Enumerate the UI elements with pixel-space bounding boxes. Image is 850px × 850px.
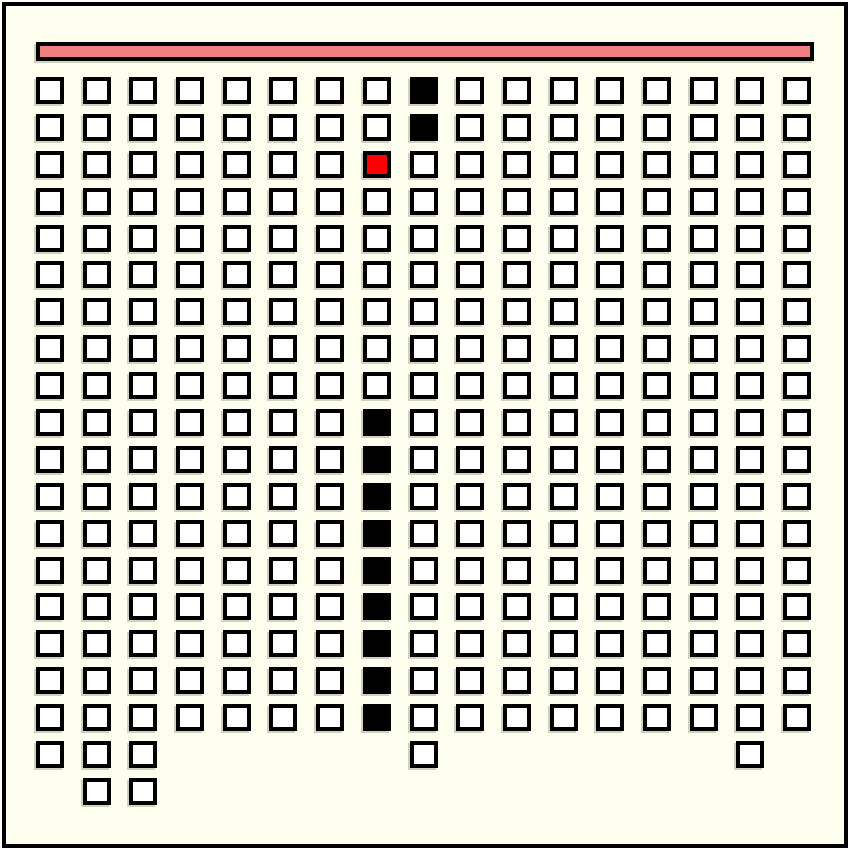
board-cell <box>83 741 111 768</box>
board-cell <box>550 520 578 547</box>
board-cell <box>36 667 64 694</box>
board-cell <box>456 298 484 325</box>
board-cell <box>736 446 764 473</box>
board-cell <box>223 188 251 215</box>
board-cell <box>690 151 718 178</box>
board-cell <box>129 446 157 473</box>
board-cell <box>783 372 811 399</box>
board-cell <box>129 77 157 104</box>
board-cell <box>83 483 111 510</box>
board-cell <box>503 188 531 215</box>
board-cell <box>410 372 438 399</box>
board-cell <box>596 593 624 620</box>
board-cell <box>550 667 578 694</box>
board-cell <box>503 372 531 399</box>
board-cell <box>410 557 438 584</box>
board-cell <box>36 557 64 584</box>
board-cell <box>129 409 157 436</box>
board-cell <box>36 483 64 510</box>
board-cell <box>223 261 251 288</box>
board-cell <box>456 372 484 399</box>
board-cell <box>643 372 671 399</box>
board-cell <box>269 151 297 178</box>
board-cell <box>410 446 438 473</box>
board-cell <box>83 667 111 694</box>
board-cell <box>363 114 391 141</box>
board-cell <box>736 261 764 288</box>
board-cell <box>410 520 438 547</box>
board-cell <box>503 557 531 584</box>
board-cell <box>596 630 624 657</box>
board-cell <box>176 704 204 731</box>
board-cell <box>550 372 578 399</box>
board-cell <box>736 593 764 620</box>
board-cell <box>503 151 531 178</box>
board-cell <box>269 446 297 473</box>
board-cell <box>363 409 391 436</box>
board-cell <box>550 151 578 178</box>
board-cell <box>783 77 811 104</box>
board-cell <box>550 225 578 252</box>
board-cell <box>690 261 718 288</box>
board-cell <box>596 409 624 436</box>
board-cell <box>83 335 111 362</box>
board-cell <box>690 483 718 510</box>
board-cell <box>550 77 578 104</box>
board-cell <box>363 261 391 288</box>
app-canvas <box>0 0 850 850</box>
board-cell <box>316 225 344 252</box>
board-cell <box>736 225 764 252</box>
board-cell <box>410 261 438 288</box>
board-cell <box>596 520 624 547</box>
board-cell <box>83 778 111 805</box>
board-cell <box>223 114 251 141</box>
board-cell <box>783 557 811 584</box>
board-cell <box>316 114 344 141</box>
board-cell <box>129 261 157 288</box>
board-cell <box>176 557 204 584</box>
board-cell <box>736 77 764 104</box>
board-cell <box>690 298 718 325</box>
board-cell <box>176 520 204 547</box>
board-cell <box>503 483 531 510</box>
board-cell <box>643 298 671 325</box>
board-cell <box>176 630 204 657</box>
board-cell <box>410 298 438 325</box>
board-cell <box>690 520 718 547</box>
board-cell <box>316 261 344 288</box>
board-cell <box>176 298 204 325</box>
board-cell <box>456 409 484 436</box>
board-cell <box>410 741 438 768</box>
board-cell <box>410 409 438 436</box>
board-cell <box>456 77 484 104</box>
board-cell <box>736 667 764 694</box>
board-cell <box>83 225 111 252</box>
board-cell <box>269 298 297 325</box>
board-cell <box>129 151 157 178</box>
board-cell <box>456 520 484 547</box>
board-cell <box>690 114 718 141</box>
board-cell <box>176 483 204 510</box>
board-cell <box>596 225 624 252</box>
board-cell <box>269 667 297 694</box>
board-cell <box>363 446 391 473</box>
board-cell <box>129 225 157 252</box>
board-cell <box>223 593 251 620</box>
board-cell <box>363 557 391 584</box>
board-cell <box>783 483 811 510</box>
board-cell <box>643 630 671 657</box>
board-cell <box>316 335 344 362</box>
board-cell <box>456 667 484 694</box>
board-cell <box>223 557 251 584</box>
board-cell <box>643 483 671 510</box>
board-cell <box>503 335 531 362</box>
progress-bar <box>36 42 814 61</box>
board-cell <box>316 151 344 178</box>
board-cell <box>269 114 297 141</box>
board-cell <box>503 261 531 288</box>
board-cell <box>550 446 578 473</box>
board-cell <box>503 667 531 694</box>
board-cell <box>736 520 764 547</box>
board-cell <box>316 520 344 547</box>
board-cell <box>596 77 624 104</box>
board-cell <box>316 446 344 473</box>
board-cell <box>410 188 438 215</box>
board-cell <box>176 188 204 215</box>
board-cell <box>176 151 204 178</box>
board-cell <box>363 483 391 510</box>
board-cell <box>363 630 391 657</box>
board-cell <box>596 151 624 178</box>
board-cell <box>269 593 297 620</box>
board-cell <box>410 225 438 252</box>
board-cell <box>83 630 111 657</box>
board-cell <box>223 298 251 325</box>
board-cell <box>36 77 64 104</box>
board-cell <box>363 520 391 547</box>
board-cell <box>643 704 671 731</box>
board-cell <box>783 593 811 620</box>
board-cell <box>736 483 764 510</box>
board-cell <box>83 298 111 325</box>
board-cell <box>503 225 531 252</box>
board-cell <box>129 483 157 510</box>
board-cell <box>316 372 344 399</box>
board-cell <box>503 520 531 547</box>
board-cell <box>456 188 484 215</box>
board-cell <box>783 151 811 178</box>
board-cell <box>596 261 624 288</box>
board-cell <box>643 151 671 178</box>
board-cell <box>269 77 297 104</box>
board-cell <box>83 704 111 731</box>
board-cell <box>456 151 484 178</box>
board-cell <box>690 630 718 657</box>
board-cell <box>83 372 111 399</box>
board-cell <box>129 778 157 805</box>
board-cell <box>223 667 251 694</box>
board-cell <box>269 483 297 510</box>
board-cell <box>269 630 297 657</box>
board-cell <box>269 409 297 436</box>
board-cell <box>316 188 344 215</box>
board-cell <box>129 520 157 547</box>
board-cell <box>36 704 64 731</box>
board-cell <box>176 409 204 436</box>
board-cell <box>176 225 204 252</box>
board-cell <box>83 114 111 141</box>
board-cell <box>83 151 111 178</box>
board-cell <box>596 188 624 215</box>
board-cell <box>176 261 204 288</box>
board-cell <box>36 298 64 325</box>
board-cell <box>550 261 578 288</box>
board-cell <box>596 446 624 473</box>
board-cell <box>269 372 297 399</box>
board-cell <box>36 593 64 620</box>
board-cell <box>36 446 64 473</box>
board-cell <box>456 261 484 288</box>
board-cell <box>736 298 764 325</box>
board-cell <box>550 593 578 620</box>
board-cell <box>83 593 111 620</box>
board-cell <box>783 335 811 362</box>
board-cell <box>36 335 64 362</box>
board-cell <box>363 372 391 399</box>
board-cell <box>410 593 438 620</box>
board-cell <box>363 593 391 620</box>
board-cell <box>643 557 671 584</box>
board-cell <box>596 483 624 510</box>
board-cell <box>783 188 811 215</box>
board-cell <box>316 298 344 325</box>
board-cell <box>456 557 484 584</box>
board-cell <box>316 667 344 694</box>
board-cell <box>363 151 391 178</box>
board-cell <box>550 557 578 584</box>
board-cell <box>129 704 157 731</box>
board-cell <box>316 77 344 104</box>
board-cell <box>596 557 624 584</box>
board-cell <box>690 557 718 584</box>
board-cell <box>36 520 64 547</box>
board-cell <box>643 188 671 215</box>
board-cell <box>269 225 297 252</box>
board-cell <box>36 188 64 215</box>
board-cell <box>83 520 111 547</box>
board-cell <box>503 630 531 657</box>
board-cell <box>316 557 344 584</box>
board-cell <box>783 446 811 473</box>
board-cell <box>456 335 484 362</box>
board-cell <box>783 409 811 436</box>
board-cell <box>83 409 111 436</box>
board-cell <box>410 151 438 178</box>
board-cell <box>363 335 391 362</box>
board-cell <box>690 335 718 362</box>
board-cell <box>223 446 251 473</box>
board-cell <box>643 667 671 694</box>
board-cell <box>129 557 157 584</box>
board-cell <box>129 593 157 620</box>
board-cell <box>456 483 484 510</box>
board-cell <box>783 114 811 141</box>
board-cell <box>36 372 64 399</box>
board-cell <box>690 77 718 104</box>
board-cell <box>643 261 671 288</box>
board-cell <box>643 225 671 252</box>
board-cell <box>36 409 64 436</box>
board-cell <box>550 630 578 657</box>
board-cell <box>783 520 811 547</box>
board-cell <box>736 372 764 399</box>
board-cell <box>129 335 157 362</box>
board-cell <box>363 667 391 694</box>
board-cell <box>550 114 578 141</box>
board-cell <box>129 298 157 325</box>
board-cell <box>690 409 718 436</box>
board-cell <box>736 557 764 584</box>
board-cell <box>363 298 391 325</box>
board-cell <box>129 372 157 399</box>
board-cell <box>410 114 438 141</box>
board-cell <box>316 630 344 657</box>
board-cell <box>269 557 297 584</box>
board-cell <box>316 483 344 510</box>
board-cell <box>176 114 204 141</box>
board-cell <box>503 298 531 325</box>
board-cell <box>783 704 811 731</box>
board-cell <box>129 630 157 657</box>
board-cell <box>363 188 391 215</box>
board-cell <box>83 557 111 584</box>
board-cell <box>363 225 391 252</box>
board-cell <box>596 704 624 731</box>
board-cell <box>129 114 157 141</box>
board-cell <box>269 335 297 362</box>
board-cell <box>363 704 391 731</box>
board-cell <box>83 261 111 288</box>
board-cell <box>503 77 531 104</box>
board-cell <box>223 483 251 510</box>
board-cell <box>176 335 204 362</box>
board-cell <box>410 630 438 657</box>
board-cell <box>223 335 251 362</box>
board-cell <box>503 409 531 436</box>
board-cell <box>643 114 671 141</box>
board-cell <box>783 298 811 325</box>
board-cell <box>690 188 718 215</box>
board-cell <box>456 446 484 473</box>
board-cell <box>176 372 204 399</box>
board-cell <box>736 188 764 215</box>
board-cell <box>36 225 64 252</box>
board-cell <box>550 188 578 215</box>
board-cell <box>456 114 484 141</box>
board-cell <box>690 225 718 252</box>
board-cell <box>269 261 297 288</box>
board-cell <box>410 704 438 731</box>
board-cell <box>456 704 484 731</box>
board-cell <box>596 335 624 362</box>
board-cell <box>736 630 764 657</box>
board-cell <box>83 188 111 215</box>
board-cell <box>223 630 251 657</box>
board-cell <box>643 409 671 436</box>
board-cell <box>550 298 578 325</box>
board-cell <box>643 593 671 620</box>
board-cell <box>129 741 157 768</box>
board-cell <box>456 630 484 657</box>
board-cell <box>269 520 297 547</box>
board-cell <box>643 520 671 547</box>
board-cell <box>596 114 624 141</box>
board-cell <box>223 520 251 547</box>
board-grid <box>36 77 811 805</box>
board-cell <box>690 667 718 694</box>
board-cell <box>643 335 671 362</box>
board-cell <box>690 593 718 620</box>
board-cell <box>690 704 718 731</box>
board-cell <box>316 593 344 620</box>
board-cell <box>36 114 64 141</box>
board-cell <box>783 630 811 657</box>
board-cell <box>223 372 251 399</box>
board-cell <box>83 446 111 473</box>
board-cell <box>736 151 764 178</box>
board-cell <box>316 409 344 436</box>
board-cell <box>176 667 204 694</box>
board-cell <box>550 704 578 731</box>
board-cell <box>269 704 297 731</box>
board-cell <box>643 446 671 473</box>
board-cell <box>596 372 624 399</box>
board-cell <box>36 151 64 178</box>
board-cell <box>503 593 531 620</box>
board-cell <box>550 483 578 510</box>
board-cell <box>223 77 251 104</box>
board-cell <box>316 704 344 731</box>
board-cell <box>690 446 718 473</box>
board-cell <box>596 667 624 694</box>
board-cell <box>410 335 438 362</box>
board-cell <box>456 593 484 620</box>
board-cell <box>550 409 578 436</box>
board-cell <box>456 225 484 252</box>
board-cell <box>129 667 157 694</box>
board-cell <box>176 593 204 620</box>
board-cell <box>736 335 764 362</box>
board-cell <box>690 372 718 399</box>
board-cell <box>736 741 764 768</box>
board-cell <box>736 704 764 731</box>
board-cell <box>176 446 204 473</box>
board-cell <box>223 409 251 436</box>
board-cell <box>736 409 764 436</box>
board-cell <box>223 151 251 178</box>
board-cell <box>36 741 64 768</box>
board-cell <box>503 446 531 473</box>
board-cell <box>129 188 157 215</box>
board-cell <box>83 77 111 104</box>
board-cell <box>410 483 438 510</box>
board-cell <box>410 667 438 694</box>
board-cell <box>550 335 578 362</box>
